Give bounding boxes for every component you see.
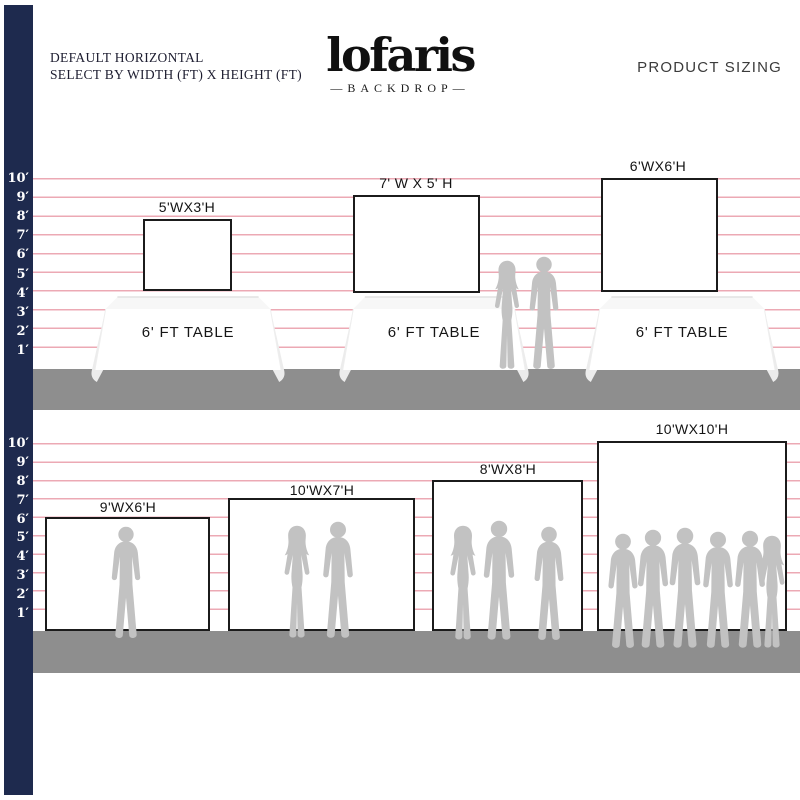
header-line1: DEFAULT HORIZONTAL xyxy=(50,49,302,66)
foot-label: 5′ xyxy=(4,268,33,282)
woman-silhouette xyxy=(752,535,792,653)
page-title: PRODUCT SIZING xyxy=(637,59,782,76)
dash-right: — xyxy=(453,81,470,95)
header-line2: SELECT BY WIDTH (FT) X HEIGHT (FT) xyxy=(50,66,302,83)
foot-label: 1′ xyxy=(4,607,33,621)
ruler-row2: 10′ 9′ 8′ 7′ 6′ 5′ 4′ 3′ 2′ 1′ xyxy=(4,437,33,621)
person-silhouette-group xyxy=(442,520,572,645)
foot-label: 9′ xyxy=(4,191,33,205)
foot-label: 7′ xyxy=(4,494,33,508)
product-sizing-graphic: DEFAULT HORIZONTAL SELECT BY WIDTH (FT) … xyxy=(0,0,800,800)
foot-label: 1′ xyxy=(4,344,33,358)
backdrop-5x3 xyxy=(143,219,232,291)
backdrop-size-label: 5'WX3'H xyxy=(127,199,247,215)
man-silhouette xyxy=(104,526,148,643)
man-silhouette xyxy=(476,520,522,645)
foot-label: 10′ xyxy=(4,172,33,186)
woman-silhouette xyxy=(489,260,525,374)
foot-label: 6′ xyxy=(4,248,33,262)
header-left-text: DEFAULT HORIZONTAL SELECT BY WIDTH (FT) … xyxy=(50,49,302,83)
foot-label: 2′ xyxy=(4,325,33,339)
foot-label: 4′ xyxy=(4,550,33,564)
backdrop-6x6 xyxy=(601,178,718,292)
backdrop-size-label: 6'WX6'H xyxy=(598,158,718,174)
logo-subtitle: —BACKDROP— xyxy=(290,81,510,96)
brand-logo: lofaris —BACKDROP— xyxy=(290,30,510,96)
foot-label: 8′ xyxy=(4,210,33,224)
ruler-row1: 10′ 9′ 8′ 7′ 6′ 5′ 4′ 3′ 2′ 1′ xyxy=(4,172,33,358)
backdrop-size-label: 8'WX8'H xyxy=(448,461,568,477)
table-illustration xyxy=(88,296,288,386)
foot-label: 2′ xyxy=(4,588,33,602)
foot-label: 10′ xyxy=(4,437,33,451)
ruler-bar xyxy=(4,5,33,795)
couple-silhouette xyxy=(278,521,362,643)
woman-silhouette xyxy=(278,525,316,643)
backdrop-size-label: 10'WX7'H xyxy=(262,482,382,498)
foot-label: 6′ xyxy=(4,513,33,527)
foot-label: 8′ xyxy=(4,475,33,489)
man-silhouette xyxy=(526,526,572,645)
foot-label: 3′ xyxy=(4,569,33,583)
backdrop-size-label: 9'WX6'H xyxy=(68,499,188,515)
backdrop-size-label: 7' W X 5' H xyxy=(336,175,496,191)
person-silhouette-group xyxy=(100,526,152,643)
foot-label: 7′ xyxy=(4,229,33,243)
man-silhouette xyxy=(316,521,360,643)
logo-subtitle-text: BACKDROP xyxy=(347,81,452,95)
person-silhouette-group xyxy=(600,527,788,653)
logo-wordmark: lofaris xyxy=(290,30,510,80)
table-label: 6' FT TABLE xyxy=(118,324,258,341)
dash-left: — xyxy=(330,81,347,95)
backdrop-7x5 xyxy=(353,195,480,293)
foot-label: 3′ xyxy=(4,306,33,320)
couple-silhouette xyxy=(489,256,567,374)
table-label: 6' FT TABLE xyxy=(364,324,504,341)
table-illustration xyxy=(582,296,782,386)
man-silhouette xyxy=(523,256,565,374)
backdrop-size-label: 10'WX10'H xyxy=(632,421,752,437)
table-label: 6' FT TABLE xyxy=(612,324,752,341)
foot-label: 4′ xyxy=(4,287,33,301)
foot-label: 5′ xyxy=(4,531,33,545)
foot-label: 9′ xyxy=(4,456,33,470)
